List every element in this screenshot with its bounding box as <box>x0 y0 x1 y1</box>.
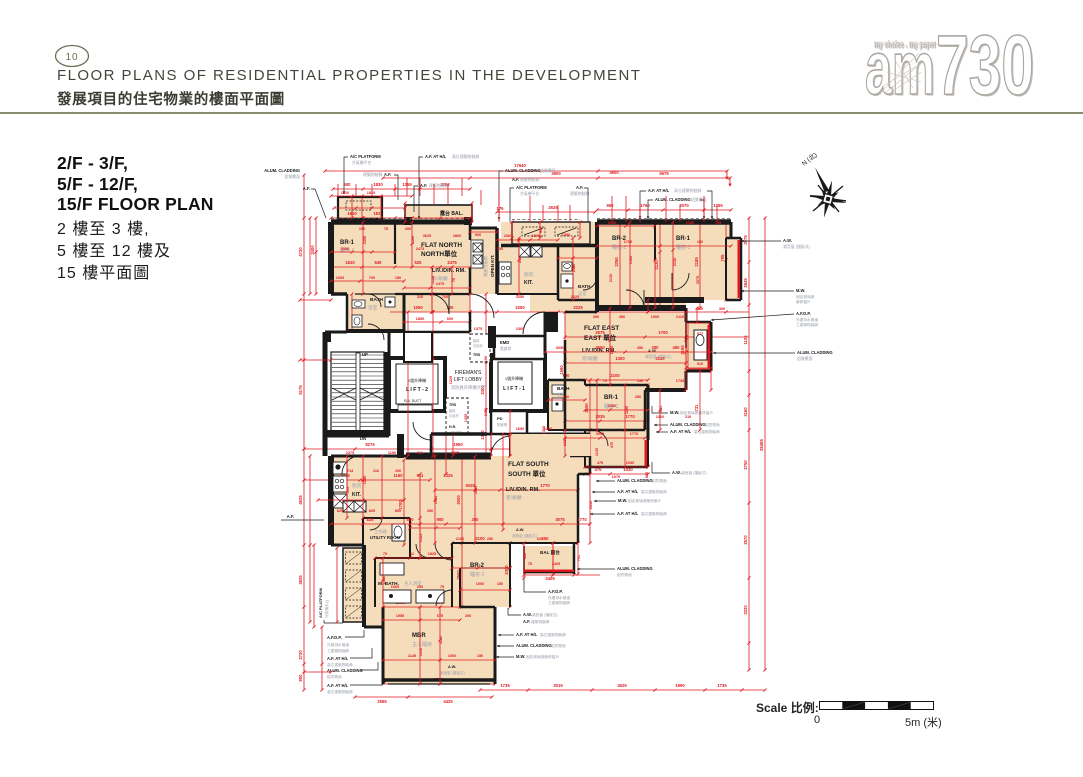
svg-text:之建築物裝飾: 之建築物裝飾 <box>796 322 818 327</box>
svg-text:A/C PLATFORM: A/C PLATFORM <box>516 185 547 190</box>
svg-text:1150: 1150 <box>431 276 435 284</box>
svg-text:800: 800 <box>407 517 415 522</box>
svg-text:1185: 1185 <box>625 406 629 414</box>
svg-text:2350: 2350 <box>363 236 367 244</box>
svg-text:200: 200 <box>405 227 411 231</box>
svg-text:ELV. DUCT: ELV. DUCT <box>404 399 421 403</box>
svg-text:L I F T - 1: L I F T - 1 <box>503 386 525 392</box>
svg-text:1010: 1010 <box>419 648 423 656</box>
svg-text:1500: 1500 <box>629 256 633 264</box>
svg-text:高位建築物裝飾: 高位建築物裝飾 <box>694 429 720 434</box>
svg-text:BATH: BATH <box>557 386 570 391</box>
svg-text:2300: 2300 <box>516 327 524 331</box>
svg-text:1150: 1150 <box>393 473 403 478</box>
svg-text:900: 900 <box>437 517 445 522</box>
svg-text:1375: 1375 <box>474 327 482 331</box>
svg-text:1770: 1770 <box>630 432 638 436</box>
svg-text:A.F. AT H/L: A.F. AT H/L <box>516 632 538 637</box>
svg-text:KIT.: KIT. <box>524 280 534 286</box>
svg-text:1350: 1350 <box>464 414 468 422</box>
svg-text:5275: 5275 <box>365 442 375 447</box>
svg-text:A.F.: A.F. <box>303 186 310 191</box>
svg-text:A.F.: A.F. <box>384 172 391 177</box>
svg-text:1903: 1903 <box>434 496 438 504</box>
svg-text:675: 675 <box>437 614 443 618</box>
svg-text:700: 700 <box>369 276 375 280</box>
svg-text:2100: 2100 <box>456 537 464 541</box>
svg-text:1000: 1000 <box>336 276 344 280</box>
svg-text:1355: 1355 <box>713 203 723 208</box>
svg-text:175: 175 <box>497 206 505 211</box>
svg-text:2185: 2185 <box>694 257 699 267</box>
svg-text:2250: 2250 <box>515 305 525 310</box>
svg-text:3000: 3000 <box>456 495 461 505</box>
svg-text:冷氣機平台: 冷氣機平台 <box>520 191 540 196</box>
svg-text:A.F. AT H/L: A.F. AT H/L <box>425 154 447 159</box>
svg-text:900: 900 <box>563 395 569 399</box>
svg-text:825: 825 <box>367 517 375 522</box>
svg-text:5675: 5675 <box>659 171 669 176</box>
svg-text:1135: 1135 <box>595 448 599 456</box>
svg-text:1760: 1760 <box>640 203 650 208</box>
svg-text:高位建築物裝飾: 高位建築物裝飾 <box>327 689 353 694</box>
svg-text:3625: 3625 <box>617 683 627 688</box>
svg-text:鋁質覆面: 鋁質覆面 <box>652 478 667 483</box>
svg-text:3575: 3575 <box>743 235 748 245</box>
svg-text:75: 75 <box>452 278 456 282</box>
svg-text:客/飯廳: 客/飯廳 <box>506 494 522 501</box>
svg-text:1700: 1700 <box>624 240 632 244</box>
svg-text:鋁質覆面: 鋁質覆面 <box>327 674 342 679</box>
svg-text:2405: 2405 <box>552 562 560 566</box>
svg-text:EAST 單位: EAST 單位 <box>584 333 617 342</box>
svg-text:睡房-2: 睡房-2 <box>612 244 627 251</box>
svg-text:A.W.: A.W. <box>448 665 456 669</box>
svg-text:SOUTH 單位: SOUTH 單位 <box>508 469 546 478</box>
svg-text:臨時: 臨時 <box>449 408 456 413</box>
svg-text:100: 100 <box>395 469 401 473</box>
svg-text:M.W.: M.W. <box>618 498 627 503</box>
svg-text:浴室: 浴室 <box>578 290 586 297</box>
svg-text:1300: 1300 <box>615 356 625 361</box>
svg-text:3400: 3400 <box>310 245 315 255</box>
svg-text:減音窗 (擋板式): 減音窗 (擋板式) <box>532 612 558 617</box>
svg-text:PD: PD <box>497 416 503 421</box>
svg-text:建築物裝飾: 建築物裝飾 <box>429 183 449 188</box>
svg-text:1990: 1990 <box>675 683 685 688</box>
svg-text:825: 825 <box>369 509 375 513</box>
svg-text:475: 475 <box>597 461 603 465</box>
svg-text:2130: 2130 <box>673 258 677 266</box>
svg-text:150: 150 <box>637 379 643 383</box>
svg-text:250: 250 <box>487 537 493 541</box>
svg-text:3575: 3575 <box>696 276 700 284</box>
svg-text:FLAT SOUTH: FLAT SOUTH <box>508 461 549 468</box>
svg-text:建築物裝飾: 建築物裝飾 <box>363 172 383 177</box>
svg-text:垃圾房: 垃圾房 <box>473 343 483 348</box>
svg-text:A.F. AT H/L: A.F. AT H/L <box>617 489 639 494</box>
svg-text:減音窗 (擋板式): 減音窗 (擋板式) <box>681 470 707 475</box>
svg-text:A.F.: A.F. <box>420 183 427 188</box>
svg-text:露台 BAL.: 露台 BAL. <box>440 210 464 217</box>
svg-text:1810: 1810 <box>345 260 355 265</box>
svg-text:1950: 1950 <box>453 442 463 447</box>
svg-text:建築物裝飾: 建築物裝飾 <box>531 619 550 624</box>
svg-text:75: 75 <box>383 552 387 556</box>
svg-text:高位建築物裝飾: 高位建築物裝飾 <box>674 188 701 193</box>
svg-text:75: 75 <box>440 585 444 589</box>
svg-text:L I F T - 2: L I F T - 2 <box>406 387 428 393</box>
svg-text:11: 11 <box>410 552 414 556</box>
svg-text:2720: 2720 <box>298 650 303 660</box>
svg-text:760: 760 <box>442 295 448 299</box>
svg-text:工作間: 工作間 <box>374 528 387 535</box>
svg-text:N (北): N (北) <box>800 151 818 168</box>
svg-text:A/C PLATFORM: A/C PLATFORM <box>318 587 323 618</box>
svg-text:2350: 2350 <box>614 257 619 267</box>
svg-text:固定玻璃遮蔽修窗戶: 固定玻璃遮蔽修窗戶 <box>628 498 661 503</box>
svg-text:客/飯廳: 客/飯廳 <box>582 355 598 362</box>
svg-text:減音窗 (擋板式): 減音窗 (擋板式) <box>783 244 811 249</box>
svg-text:2630: 2630 <box>589 501 593 509</box>
svg-text:2750: 2750 <box>743 460 748 470</box>
svg-text:A.F.D.P.: A.F.D.P. <box>327 635 342 640</box>
svg-text:1145: 1145 <box>439 636 443 644</box>
svg-text:BR-1: BR-1 <box>676 236 691 242</box>
svg-text:1023: 1023 <box>563 438 567 446</box>
svg-text:1830: 1830 <box>373 182 383 187</box>
svg-text:BATH: BATH <box>370 297 384 303</box>
svg-text:M.W.: M.W. <box>796 288 805 293</box>
svg-text:消防員升降機大堂: 消防員升降機大堂 <box>450 384 486 391</box>
svg-text:75: 75 <box>384 227 388 231</box>
svg-text:FIREMAN'S: FIREMAN'S <box>455 370 482 376</box>
svg-text:150: 150 <box>477 654 483 658</box>
svg-text:臨時: 臨時 <box>473 338 480 343</box>
svg-text:LIFT LOBBY: LIFT LOBBY <box>454 377 483 383</box>
svg-text:960: 960 <box>539 227 543 233</box>
svg-text:3220: 3220 <box>743 605 748 615</box>
svg-text:2號升降機: 2號升降機 <box>408 377 426 383</box>
svg-text:BATH: BATH <box>578 284 591 289</box>
svg-text:之建築物裝飾: 之建築物裝飾 <box>327 648 349 653</box>
svg-text:250: 250 <box>427 509 433 513</box>
svg-text:900: 900 <box>475 233 481 237</box>
svg-text:250: 250 <box>518 257 522 263</box>
svg-text:配管槽: 配管槽 <box>497 422 508 427</box>
svg-text:450: 450 <box>673 345 681 350</box>
svg-text:冷氣機平台: 冷氣機平台 <box>324 599 329 618</box>
svg-text:1225: 1225 <box>449 376 453 384</box>
svg-text:2570: 2570 <box>743 535 748 545</box>
svg-text:1523: 1523 <box>419 534 423 542</box>
svg-text:ALUM. CLADDING: ALUM. CLADDING <box>617 566 653 571</box>
svg-text:減音窗 (擋板式): 減音窗 (擋板式) <box>512 533 537 538</box>
svg-text:OPEN KIT.: OPEN KIT. <box>490 255 495 277</box>
svg-text:A.W.: A.W. <box>783 238 792 243</box>
svg-text:2350: 2350 <box>341 247 349 251</box>
svg-text:475: 475 <box>610 442 614 448</box>
svg-text:1735: 1735 <box>717 683 727 688</box>
svg-text:751: 751 <box>577 555 581 561</box>
svg-text:之建築物裝飾: 之建築物裝飾 <box>548 600 570 605</box>
svg-text:固定玻璃遮蔽修窗戶: 固定玻璃遮蔽修窗戶 <box>526 654 559 659</box>
svg-text:垃圾房: 垃圾房 <box>449 413 459 418</box>
svg-text:睡房-1: 睡房-1 <box>676 244 691 251</box>
svg-text:1770: 1770 <box>540 483 550 488</box>
svg-text:2845: 2845 <box>743 278 748 288</box>
svg-text:1825: 1825 <box>367 191 375 195</box>
svg-text:950: 950 <box>607 203 615 208</box>
svg-text:1955: 1955 <box>396 614 404 618</box>
svg-text:FLAT NORTH: FLAT NORTH <box>421 242 462 249</box>
svg-text:2300: 2300 <box>504 234 512 238</box>
svg-text:TRS: TRS <box>473 353 481 357</box>
svg-text:2300: 2300 <box>504 565 509 575</box>
svg-text:A.W.: A.W. <box>672 470 681 475</box>
svg-text:4625: 4625 <box>298 495 303 505</box>
svg-text:浴室: 浴室 <box>368 304 378 311</box>
svg-text:高位建築物裝飾: 高位建築物裝飾 <box>641 489 667 494</box>
svg-text:1145: 1145 <box>408 654 416 658</box>
svg-text:1300: 1300 <box>656 415 664 419</box>
svg-text:1580: 1580 <box>610 346 614 354</box>
svg-text:2375: 2375 <box>346 451 354 455</box>
svg-text:3015: 3015 <box>553 683 563 688</box>
svg-text:鋁質覆面: 鋁質覆面 <box>797 356 813 361</box>
svg-text:A.F.D.P.: A.F.D.P. <box>796 311 811 316</box>
svg-text:A.F.: A.F. <box>523 619 530 624</box>
svg-text:1735: 1735 <box>676 379 684 383</box>
svg-text:1300: 1300 <box>651 315 659 319</box>
svg-text:3650: 3650 <box>595 345 605 350</box>
svg-text:FLAT EAST: FLAT EAST <box>584 325 619 332</box>
svg-text:75: 75 <box>603 379 607 383</box>
svg-text:977: 977 <box>697 332 703 336</box>
svg-text:冷氣機平台: 冷氣機平台 <box>352 160 372 165</box>
svg-text:BR-1: BR-1 <box>340 240 355 246</box>
svg-text:1580: 1580 <box>559 365 564 375</box>
svg-text:820: 820 <box>523 553 527 559</box>
svg-text:LIV./DIN. RM.: LIV./DIN. RM. <box>506 487 540 493</box>
svg-text:525: 525 <box>415 260 423 265</box>
svg-text:高位建築物裝飾: 高位建築物裝飾 <box>540 632 566 637</box>
svg-text:2130: 2130 <box>609 274 613 282</box>
svg-text:2625: 2625 <box>548 205 558 210</box>
svg-text:2250: 2250 <box>516 295 524 299</box>
svg-text:A.F.: A.F. <box>576 185 583 190</box>
svg-text:640: 640 <box>375 260 383 265</box>
svg-text:1620: 1620 <box>341 191 349 195</box>
svg-text:ALUM. CLADDING: ALUM. CLADDING <box>655 197 691 202</box>
svg-text:EMD: EMD <box>500 340 509 345</box>
svg-text:825: 825 <box>645 472 649 478</box>
svg-text:外牆排水管道: 外牆排水管道 <box>548 595 570 600</box>
svg-text:ALUM. CLADDING: ALUM. CLADDING <box>797 350 833 355</box>
svg-text:ALUM. CLADDING: ALUM. CLADDING <box>264 168 300 173</box>
svg-text:建築物裝飾: 建築物裝飾 <box>520 177 540 182</box>
svg-text:2475: 2475 <box>447 260 457 265</box>
svg-text:固定玻璃遮: 固定玻璃遮 <box>796 294 815 299</box>
svg-text:3035: 3035 <box>596 432 604 436</box>
svg-text:廚房: 廚房 <box>524 271 534 278</box>
svg-text:A/C PLATFORM: A/C PLATFORM <box>350 154 381 159</box>
svg-text:3000: 3000 <box>474 486 478 494</box>
svg-text:460: 460 <box>697 307 703 311</box>
svg-text:UP: UP <box>362 352 368 357</box>
svg-text:建築物裝飾: 建築物裝飾 <box>570 191 590 196</box>
svg-text:1650: 1650 <box>516 427 524 431</box>
svg-text:2185: 2185 <box>686 221 694 225</box>
svg-text:1150: 1150 <box>388 451 396 455</box>
svg-text:A.F.: A.F. <box>512 177 519 182</box>
svg-text:3825: 3825 <box>298 575 303 585</box>
svg-text:2405: 2405 <box>545 576 555 581</box>
svg-text:鋁質覆面: 鋁質覆面 <box>551 643 566 648</box>
svg-text:A.F. AT H/L: A.F. AT H/L <box>670 429 692 434</box>
svg-text:731: 731 <box>694 404 699 412</box>
svg-text:1號升降機: 1號升降機 <box>505 375 523 381</box>
svg-text:A.F. AT H/L: A.F. AT H/L <box>617 511 639 516</box>
svg-text:3600: 3600 <box>609 170 619 175</box>
svg-text:2400: 2400 <box>484 408 488 416</box>
svg-text:A.F. AT H/L: A.F. AT H/L <box>648 188 670 193</box>
svg-text:1035: 1035 <box>659 406 663 414</box>
svg-text:KIT.: KIT. <box>352 492 362 498</box>
svg-text:高位建築物裝飾: 高位建築物裝飾 <box>452 154 479 159</box>
svg-text:2350: 2350 <box>572 264 576 272</box>
svg-text:4425: 4425 <box>443 699 453 704</box>
svg-text:755: 755 <box>720 254 725 262</box>
svg-text:UTILITY ROOM: UTILITY ROOM <box>370 535 400 540</box>
svg-text:75: 75 <box>528 562 532 566</box>
svg-text:A.F.D.P.: A.F.D.P. <box>548 589 563 594</box>
svg-text:鋁質覆面: 鋁質覆面 <box>540 168 556 173</box>
svg-text:鋁質覆面: 鋁質覆面 <box>617 572 632 577</box>
svg-text:625: 625 <box>337 509 343 513</box>
svg-text:A.W.: A.W. <box>523 612 532 617</box>
svg-text:1360: 1360 <box>542 426 546 434</box>
svg-text:1550: 1550 <box>562 233 570 237</box>
svg-text:1150: 1150 <box>484 356 488 364</box>
svg-text:620: 620 <box>537 537 543 541</box>
svg-text:1105: 1105 <box>743 335 748 345</box>
svg-text:高位建築物裝飾: 高位建築物裝飾 <box>327 662 353 667</box>
svg-text:廚房: 廚房 <box>352 482 362 489</box>
svg-text:210: 210 <box>685 415 691 419</box>
svg-text:1030: 1030 <box>626 461 634 465</box>
svg-text:BAL 露台: BAL 露台 <box>540 549 560 556</box>
svg-text:1850: 1850 <box>416 317 424 321</box>
svg-text:1380: 1380 <box>411 236 415 244</box>
svg-text:300: 300 <box>719 307 725 311</box>
svg-text:ALUM. CLADDING: ALUM. CLADDING <box>505 168 541 173</box>
svg-text:外牆排水管道: 外牆排水管道 <box>327 642 349 647</box>
svg-text:150: 150 <box>497 247 503 251</box>
svg-text:116: 116 <box>373 469 379 473</box>
svg-text:1545: 1545 <box>363 476 367 484</box>
svg-text:開放式廚房: 開放式廚房 <box>482 256 489 277</box>
svg-text:800: 800 <box>298 674 303 682</box>
svg-text:減音窗 (擋板式): 減音窗 (擋板式) <box>440 670 465 675</box>
svg-text:鋁質覆面: 鋁質覆面 <box>705 422 720 427</box>
svg-text:睡房-2: 睡房-2 <box>470 571 485 578</box>
svg-text:755: 755 <box>715 221 721 225</box>
svg-text:1700: 1700 <box>658 330 668 335</box>
svg-text:714: 714 <box>347 469 354 473</box>
svg-text:2150: 2150 <box>584 403 589 413</box>
svg-text:NORTH單位: NORTH單位 <box>421 249 458 258</box>
svg-text:高位建築物裝飾: 高位建築物裝飾 <box>641 511 667 516</box>
svg-text:2475: 2475 <box>416 247 424 251</box>
svg-text:195: 195 <box>346 487 350 493</box>
svg-text:鋁質覆面: 鋁質覆面 <box>284 174 300 179</box>
svg-text:1000: 1000 <box>476 582 484 586</box>
svg-text:BR-1: BR-1 <box>604 395 619 401</box>
svg-text:1000: 1000 <box>391 585 399 589</box>
svg-text:2110: 2110 <box>676 315 684 319</box>
svg-text:外牆排水管道: 外牆排水管道 <box>796 317 818 322</box>
svg-text:M.W.: M.W. <box>516 654 525 659</box>
svg-text:2475: 2475 <box>436 282 444 286</box>
svg-text:H.R.: H.R. <box>449 425 456 429</box>
svg-text:2325: 2325 <box>451 451 459 455</box>
svg-text:TRS: TRS <box>449 403 457 407</box>
svg-text:26465: 26465 <box>759 439 764 451</box>
svg-text:2100: 2100 <box>610 373 620 378</box>
svg-text:A.F.: A.F. <box>287 514 294 519</box>
svg-text:A.F. AT H/L: A.F. AT H/L <box>327 656 349 661</box>
svg-text:200: 200 <box>465 614 471 618</box>
svg-text:4730: 4730 <box>298 247 303 257</box>
svg-text:150: 150 <box>395 276 401 280</box>
svg-text:911: 911 <box>417 451 423 455</box>
svg-text:253: 253 <box>417 585 423 589</box>
svg-text:A.F. AT H/L: A.F. AT H/L <box>327 683 349 688</box>
svg-text:LIV./DIN. RM.: LIV./DIN. RM. <box>432 268 466 274</box>
svg-text:主人睡房: 主人睡房 <box>412 641 432 648</box>
svg-text:2100: 2100 <box>608 404 616 408</box>
svg-text:1825: 1825 <box>428 552 436 556</box>
svg-text:150: 150 <box>359 227 365 231</box>
svg-text:1000: 1000 <box>532 234 540 238</box>
svg-text:150: 150 <box>697 240 703 244</box>
svg-text:3160: 3160 <box>743 407 748 417</box>
svg-text:450: 450 <box>619 315 625 319</box>
svg-text:450: 450 <box>637 346 643 350</box>
svg-text:1050: 1050 <box>413 305 423 310</box>
svg-text:600: 600 <box>447 317 453 321</box>
svg-text:1000: 1000 <box>448 654 456 658</box>
svg-text:MBR: MBR <box>412 633 426 639</box>
svg-text:5175: 5175 <box>298 385 303 395</box>
svg-text:1070: 1070 <box>612 475 620 479</box>
svg-text:3050: 3050 <box>556 346 564 350</box>
svg-text:2800: 2800 <box>453 234 461 238</box>
svg-text:300: 300 <box>652 345 660 350</box>
svg-text:150: 150 <box>497 582 503 586</box>
svg-text:蔽修窗戶: 蔽修窗戶 <box>796 299 811 304</box>
svg-text:2350: 2350 <box>608 221 616 225</box>
svg-text:2225: 2225 <box>571 295 579 299</box>
svg-text:2110: 2110 <box>655 356 665 361</box>
svg-text:2225: 2225 <box>573 305 583 310</box>
svg-text:3625: 3625 <box>423 234 431 238</box>
svg-text:325: 325 <box>417 295 423 299</box>
svg-text:300: 300 <box>593 315 599 319</box>
svg-text:A.W.: A.W. <box>516 528 524 532</box>
svg-text:1770: 1770 <box>577 517 587 522</box>
